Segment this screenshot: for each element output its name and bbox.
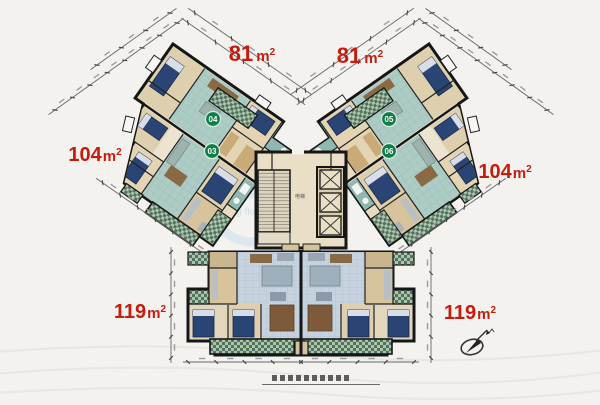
svg-text:104m2: 104m2 — [68, 144, 122, 166]
svg-text:03: 03 — [208, 147, 217, 156]
svg-text:119m2: 119m2 — [444, 302, 497, 324]
svg-text:119m2: 119m2 — [114, 301, 167, 323]
svg-text:05: 05 — [385, 115, 394, 124]
svg-text:104m2: 104m2 — [478, 161, 532, 183]
svg-text:04: 04 — [209, 115, 218, 124]
svg-text:电梯: 电梯 — [295, 193, 305, 200]
svg-text:06: 06 — [385, 147, 394, 156]
